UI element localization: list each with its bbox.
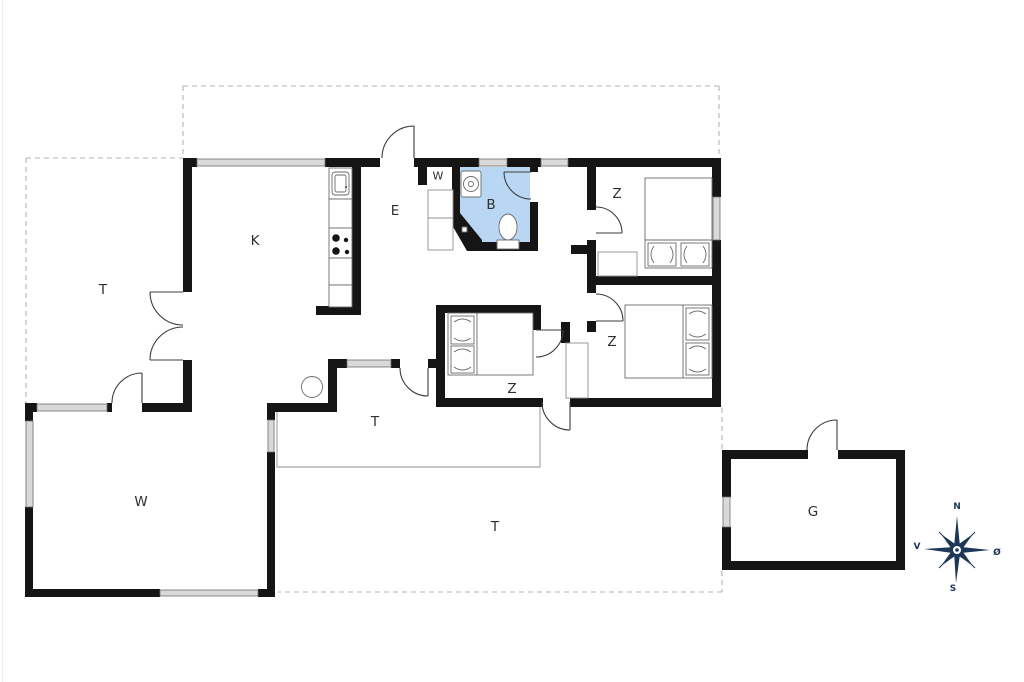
compass-letter-south: S <box>950 584 956 594</box>
room-label-garage: G <box>808 504 818 520</box>
hall-terrace-door <box>542 402 570 430</box>
round-table-icon <box>302 377 323 398</box>
bedroom-ne-closet <box>598 252 637 276</box>
garage-door <box>807 420 837 450</box>
floor-plan-drawing: K T E W B Z Z Z W T T G N S V Ø <box>0 0 1024 682</box>
window-kitchen-north <box>197 159 325 166</box>
dining-terrace-door <box>400 368 428 396</box>
compass-letter-west: V <box>914 542 921 552</box>
room-label-bedroom-mid: Z <box>507 381 516 397</box>
floor-drain-icon <box>462 227 467 232</box>
walls <box>25 158 905 597</box>
terrace-mid-outline <box>277 407 540 467</box>
window-bedroom-ne-east <box>713 197 720 240</box>
window-living-west <box>26 421 33 507</box>
room-label-bathroom: B <box>486 197 495 213</box>
bedroom-ne-door <box>596 207 622 233</box>
living-terrace-door <box>112 373 142 403</box>
counter-segment <box>329 258 352 285</box>
bed-icon-mid <box>448 313 533 375</box>
window-living-east <box>268 420 274 452</box>
entry-door <box>382 126 414 158</box>
compass-letter-east: Ø <box>993 547 1001 558</box>
room-label-terrace-mid: T <box>370 414 380 430</box>
french-door-top <box>150 292 183 325</box>
windows <box>26 159 730 596</box>
window-bath-north-1 <box>479 159 507 166</box>
room-label-kitchen: K <box>251 233 261 249</box>
kitchen-fittings <box>329 168 352 307</box>
wardrobe-cabinet <box>428 190 453 250</box>
counter-segment <box>329 285 352 307</box>
room-label-living-room: W <box>134 494 147 510</box>
counter-segment <box>329 199 352 228</box>
toilet-tank-icon <box>497 240 519 249</box>
room-label-bedroom-ne: Z <box>612 186 621 202</box>
bed-icon-ne <box>645 178 712 268</box>
room-label-entrance: E <box>391 203 400 219</box>
french-door-bottom <box>150 327 183 360</box>
room-label-bedroom-se: Z <box>607 334 616 350</box>
compass-letter-north: N <box>953 502 961 512</box>
toilet-bowl-icon <box>499 214 517 240</box>
window-garage-west <box>723 497 730 527</box>
window-living-north <box>37 404 107 411</box>
window-bath-north-2 <box>541 159 568 166</box>
bed-icon-se <box>625 305 712 378</box>
compass-rose: N S V Ø <box>914 502 1002 594</box>
bedroom-mid-door <box>536 330 563 357</box>
room-label-terrace-left: T <box>98 282 108 298</box>
room-label-terrace-south: T <box>490 519 500 535</box>
bedroom-se-door <box>596 294 623 321</box>
window-living-south <box>160 590 258 596</box>
hall-closet <box>566 343 588 398</box>
floor-plan-canvas: K T E W B Z Z Z W T T G N S V Ø <box>0 0 1024 682</box>
window-dining-south <box>347 360 391 367</box>
page-edge-line <box>2 0 3 682</box>
room-label-wardrobe: W <box>433 170 444 183</box>
